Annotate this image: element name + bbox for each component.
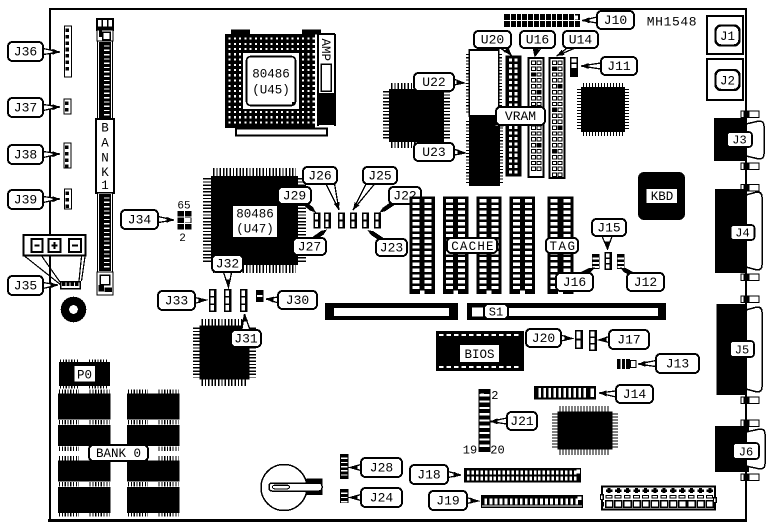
svg-text:BANK 0: BANK 0: [96, 447, 141, 461]
svg-text:U23: U23: [422, 145, 445, 160]
svg-text:J37: J37: [14, 101, 37, 116]
svg-text:J34: J34: [128, 213, 152, 228]
svg-text:KBD: KBD: [651, 190, 674, 204]
svg-text:J33: J33: [165, 294, 188, 309]
svg-text:J1: J1: [720, 30, 735, 44]
svg-text:P0: P0: [77, 369, 92, 383]
svg-text:19: 19: [463, 444, 477, 458]
svg-text:A: A: [101, 137, 109, 151]
svg-text:J30: J30: [286, 293, 309, 308]
svg-text:BIOS: BIOS: [464, 348, 494, 362]
svg-text:J10: J10: [604, 13, 627, 28]
svg-text:J21: J21: [510, 414, 534, 429]
svg-text:MH1548: MH1548: [647, 15, 697, 30]
svg-text:80486: 80486: [236, 208, 274, 222]
svg-text:AMP: AMP: [318, 39, 332, 62]
svg-text:J11: J11: [607, 59, 631, 74]
svg-text:65: 65: [177, 201, 190, 213]
svg-text:J32: J32: [216, 257, 239, 272]
svg-text:J20: J20: [532, 331, 555, 346]
svg-text:(U45): (U45): [252, 84, 290, 98]
svg-text:J6: J6: [739, 446, 753, 460]
svg-text:(U47): (U47): [236, 223, 274, 237]
svg-text:20: 20: [490, 444, 504, 458]
svg-text:J39: J39: [14, 193, 37, 208]
svg-text:1: 1: [101, 179, 109, 193]
svg-text:J31: J31: [234, 332, 258, 347]
svg-text:J18: J18: [417, 468, 440, 483]
svg-text:J3: J3: [732, 134, 746, 148]
svg-text:S1: S1: [489, 306, 503, 320]
svg-text:J4: J4: [735, 227, 749, 241]
svg-text:J26: J26: [308, 169, 331, 184]
svg-text:J24: J24: [370, 491, 394, 506]
svg-text:2: 2: [491, 389, 498, 403]
svg-text:B: B: [101, 121, 109, 135]
svg-text:U22: U22: [422, 75, 445, 90]
svg-text:J15: J15: [597, 221, 620, 236]
svg-text:J25: J25: [368, 169, 391, 184]
svg-text:2: 2: [179, 233, 186, 245]
svg-text:TAG: TAG: [549, 240, 576, 254]
svg-text:J29: J29: [283, 189, 306, 204]
svg-text:J14: J14: [623, 387, 647, 402]
svg-text:J27: J27: [298, 240, 321, 255]
svg-text:J5: J5: [735, 344, 749, 358]
svg-text:J28: J28: [370, 461, 393, 476]
svg-text:J17: J17: [617, 333, 640, 348]
svg-text:J12: J12: [634, 275, 657, 290]
svg-text:J19: J19: [436, 494, 459, 509]
svg-text:J2: J2: [720, 75, 735, 89]
svg-text:J35: J35: [14, 279, 37, 294]
svg-text:U14: U14: [569, 33, 593, 48]
svg-text:N: N: [101, 152, 109, 166]
svg-text:J16: J16: [563, 275, 586, 290]
svg-text:J38: J38: [14, 148, 37, 163]
svg-text:K: K: [101, 166, 109, 180]
svg-text:J36: J36: [14, 45, 37, 60]
svg-text:J13: J13: [666, 357, 689, 372]
svg-text:J23: J23: [380, 241, 403, 256]
svg-text:U20: U20: [481, 33, 504, 48]
svg-text:U16: U16: [526, 33, 549, 48]
svg-text:VRAM: VRAM: [505, 109, 536, 124]
svg-text:80486: 80486: [252, 68, 290, 82]
svg-text:CACHE: CACHE: [451, 240, 495, 254]
